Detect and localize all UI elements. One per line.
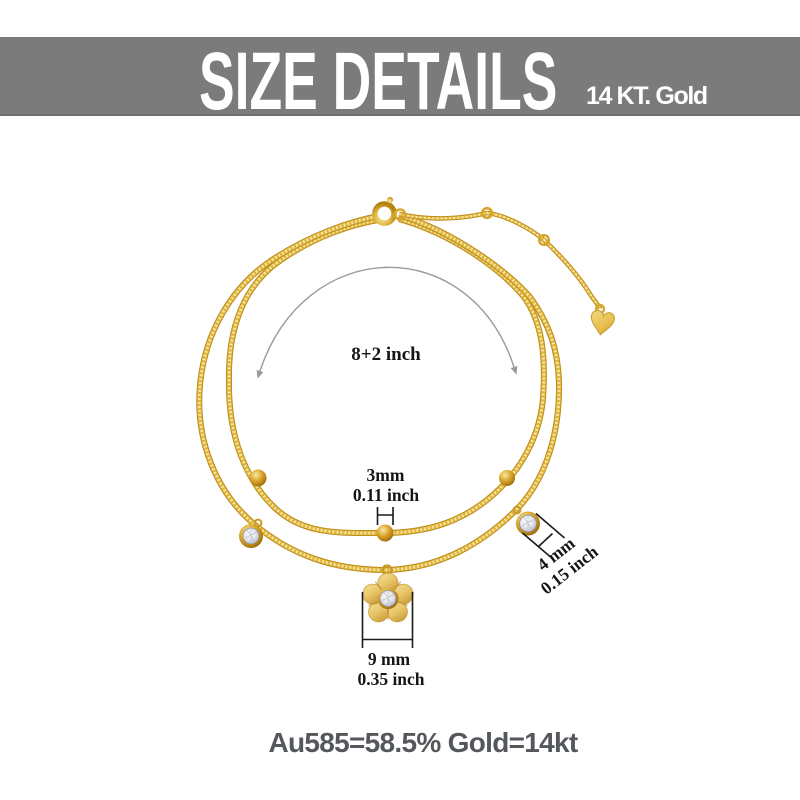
svg-text:3mm: 3mm (367, 465, 405, 485)
svg-text:0.11 inch: 0.11 inch (353, 485, 419, 505)
svg-text:0.35 inch: 0.35 inch (357, 669, 424, 689)
svg-text:9 mm: 9 mm (368, 649, 411, 669)
svg-text:8+2 inch: 8+2 inch (351, 344, 421, 365)
